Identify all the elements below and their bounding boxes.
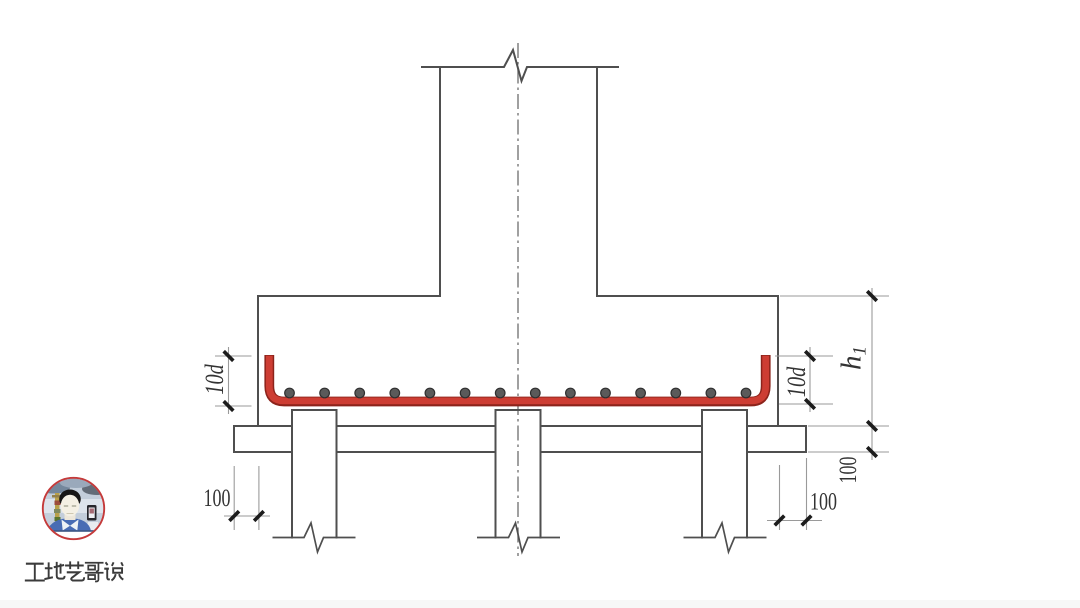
svg-text:10d: 10d: [783, 367, 812, 398]
svg-text:100: 100: [834, 456, 862, 483]
svg-text:100: 100: [204, 484, 231, 512]
svg-text:10d: 10d: [201, 364, 230, 395]
svg-text:100: 100: [810, 488, 837, 516]
svg-text:h1: h1: [836, 346, 871, 370]
